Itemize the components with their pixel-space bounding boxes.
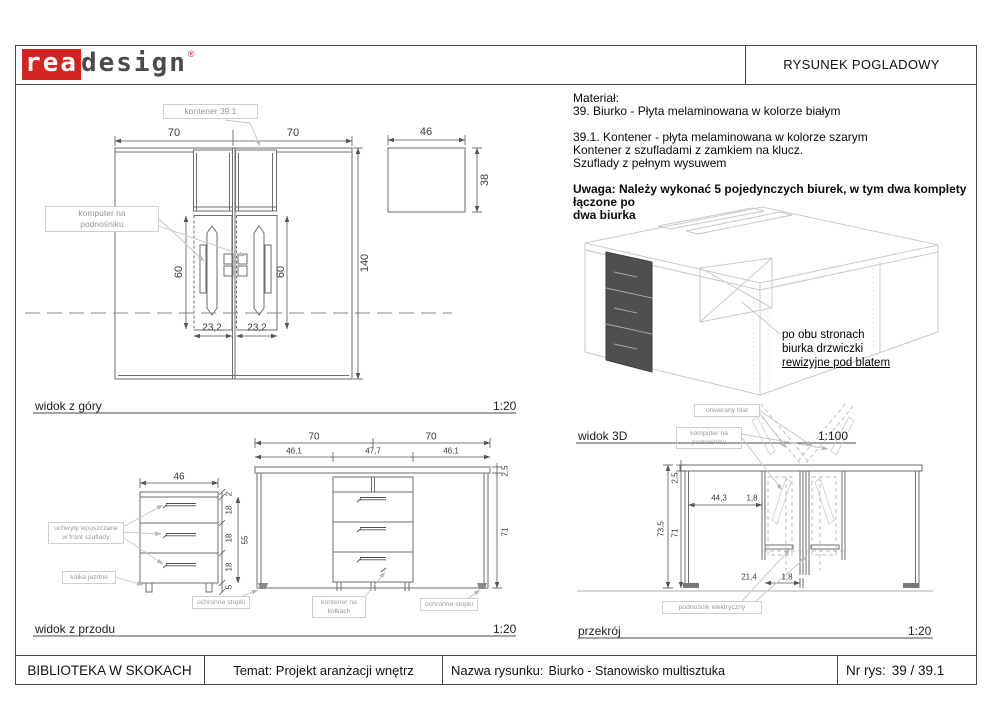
- dim-kfront-w: 46: [173, 472, 184, 483]
- label-stopki-left: ochronne stopki: [192, 596, 250, 609]
- dim-kfront-d1: 18: [225, 506, 234, 515]
- logo-design: design: [81, 49, 187, 77]
- dim-section-b: 21,4: [741, 573, 757, 582]
- label-kontener-kolka-line1: kontener na: [316, 598, 362, 607]
- dim-top-comp2: 60: [275, 266, 287, 278]
- warning-line2: dwa biurka: [573, 209, 977, 222]
- label-komputer-section-line1: komputer na: [680, 429, 738, 438]
- label-stopki-right-text: ochronne stopki: [425, 601, 473, 608]
- dim-kontener-top-w: 46: [420, 126, 432, 138]
- drawing-name: Biurko - Stanowisko multisztuka: [548, 664, 724, 678]
- dim-dfront-top: 2,5: [501, 465, 510, 476]
- dim-top-front1: 23,2: [202, 323, 221, 334]
- dim-kontener-top-d: 38: [479, 174, 491, 186]
- view-label-section: przekrój: [578, 624, 621, 638]
- sheet-title-cell: RYSUNEK POGLADOWY: [745, 45, 977, 84]
- label-otwierany: otwierany blat: [694, 404, 760, 417]
- titleblock-number-cell: Nr rys: 39 / 39.1: [838, 656, 977, 685]
- label-uchwyty: uchwyty wpuszczane w front szuflady: [48, 522, 124, 544]
- dim-kfront-top: 2: [225, 492, 234, 496]
- drawing-number: 39 / 39.1: [892, 663, 945, 678]
- dim-dfront-s1: 46,1: [286, 447, 302, 456]
- dim-dfront-w1: 70: [308, 432, 319, 443]
- label-stopki-left-text: ochronne stopki: [197, 599, 245, 606]
- dim-kfront-body: 55: [241, 536, 250, 545]
- label-kontener-ref-text: kontener 39.1: [185, 106, 237, 116]
- view-label-3d: widok 3D: [578, 429, 627, 443]
- view-scale-section: 1:20: [908, 624, 931, 638]
- view-scale-front: 1:20: [493, 622, 516, 636]
- label-rewizyjne-line1: po obu stronach: [782, 328, 890, 342]
- topic-text: Temat: Projekt aranżacji wnętrz: [233, 663, 414, 678]
- sheet-title: RYSUNEK POGLADOWY: [783, 57, 940, 72]
- dim-top-comp1: 60: [173, 266, 185, 278]
- view-label-top: widok z góry: [35, 399, 102, 413]
- warning-line1: Uwaga: Należy wykonać 5 pojedynczych biu…: [573, 183, 977, 209]
- dim-top-w1: 70: [168, 127, 180, 139]
- dim-dfront-h: 71: [501, 528, 510, 537]
- label-stopki-right: ochronne stopki: [420, 598, 478, 611]
- label-kontener-kolka: kontener na kółkach: [312, 596, 366, 618]
- dim-section-top: 2,5: [671, 472, 680, 483]
- label-rewizyjne-line2: biurka drzwiczki: [782, 342, 890, 356]
- label-kontener-kolka-line2: kółkach: [316, 607, 362, 616]
- drawing-number-label: Nr rys:: [846, 663, 886, 678]
- note-item-391-line3: Szuflady z pełnym wysuwem: [573, 157, 977, 170]
- dim-kfront-d3: 18: [225, 563, 234, 572]
- dim-kfront-d2: 18: [225, 534, 234, 543]
- logo: rea design ®: [15, 45, 745, 84]
- material-notes: Materiał: 39. Biurko - Płyta melaminowan…: [573, 92, 977, 222]
- dim-dfront-w2: 70: [425, 432, 436, 443]
- view-scale-top: 1:20: [493, 399, 516, 413]
- label-kontener-ref: kontener 39.1: [163, 104, 258, 119]
- header-bar: rea design ® RYSUNEK POGLADOWY: [15, 45, 977, 85]
- view-label-front: widok z przodu: [35, 622, 115, 636]
- drawing-name-label: Nazwa rysunku:: [451, 663, 543, 678]
- note-item-39: 39. Biurko - Płyta melaminowana w kolorz…: [573, 105, 977, 118]
- label-podnosnik-text: podnośnik elektryczny: [679, 604, 746, 611]
- label-rewizyjne: po obu stronach biurka drzwiczki rewizyj…: [782, 328, 890, 370]
- label-podnosnik: podnośnik elektryczny: [662, 601, 762, 614]
- title-block: BIBLIOTEKA W SKOKACH Temat: Projekt aran…: [15, 655, 977, 685]
- dim-section-t1: 1,8: [746, 494, 757, 503]
- titleblock-company-cell: BIBLIOTEKA W SKOKACH: [15, 656, 205, 685]
- label-rewizyjne-line3: rewizyjne pod blatem: [782, 356, 890, 370]
- label-kolka: kółka jezdne: [62, 571, 116, 584]
- dim-dfront-mid: 47,7: [365, 447, 381, 456]
- label-otwierany-text: otwierany blat: [706, 407, 748, 414]
- label-komputer-section: komputer na podnośniku: [676, 427, 742, 449]
- view-scale-3d: 1:100: [818, 429, 848, 443]
- logo-registered-icon: ®: [188, 49, 195, 59]
- titleblock-name-cell: Nazwa rysunku: Biurko - Stanowisko multi…: [443, 656, 838, 685]
- dim-dfront-s2: 46,1: [443, 447, 459, 456]
- dim-top-depth: 140: [359, 254, 371, 272]
- dim-kfront-feet: 5: [225, 585, 234, 589]
- titleblock-topic-cell: Temat: Projekt aranżacji wnętrz: [205, 656, 443, 685]
- dim-section-h: 71: [671, 529, 680, 538]
- label-uchwyty-line2: w front szuflady: [52, 533, 120, 542]
- dim-top-front2: 23,2: [247, 323, 266, 334]
- logo-rea: rea: [22, 49, 81, 80]
- dim-section-a: 44,3: [711, 494, 727, 503]
- label-komputer-top-line2: podnośniku: [49, 219, 155, 230]
- label-kolka-text: kółka jezdne: [70, 574, 108, 581]
- dim-section-t2: 1,8: [781, 573, 792, 582]
- label-komputer-top-line1: komputer na: [49, 208, 155, 219]
- company-name: BIBLIOTEKA W SKOKACH: [27, 663, 191, 678]
- label-uchwyty-line1: uchwyty wpuszczane: [52, 524, 120, 533]
- dim-top-w2: 70: [287, 127, 299, 139]
- label-komputer-section-line2: podnośniku: [680, 438, 738, 447]
- label-komputer-top: komputer na podnośniku: [45, 206, 159, 232]
- dim-section-total: 73,5: [657, 521, 666, 537]
